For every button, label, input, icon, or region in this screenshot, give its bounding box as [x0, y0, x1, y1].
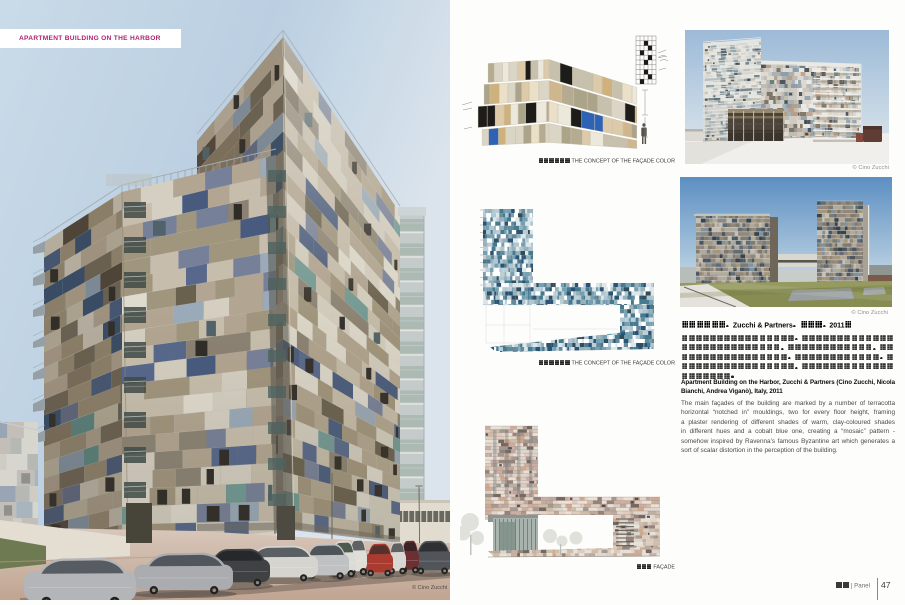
svg-text:© Cino Zucchi: © Cino Zucchi	[412, 584, 447, 591]
